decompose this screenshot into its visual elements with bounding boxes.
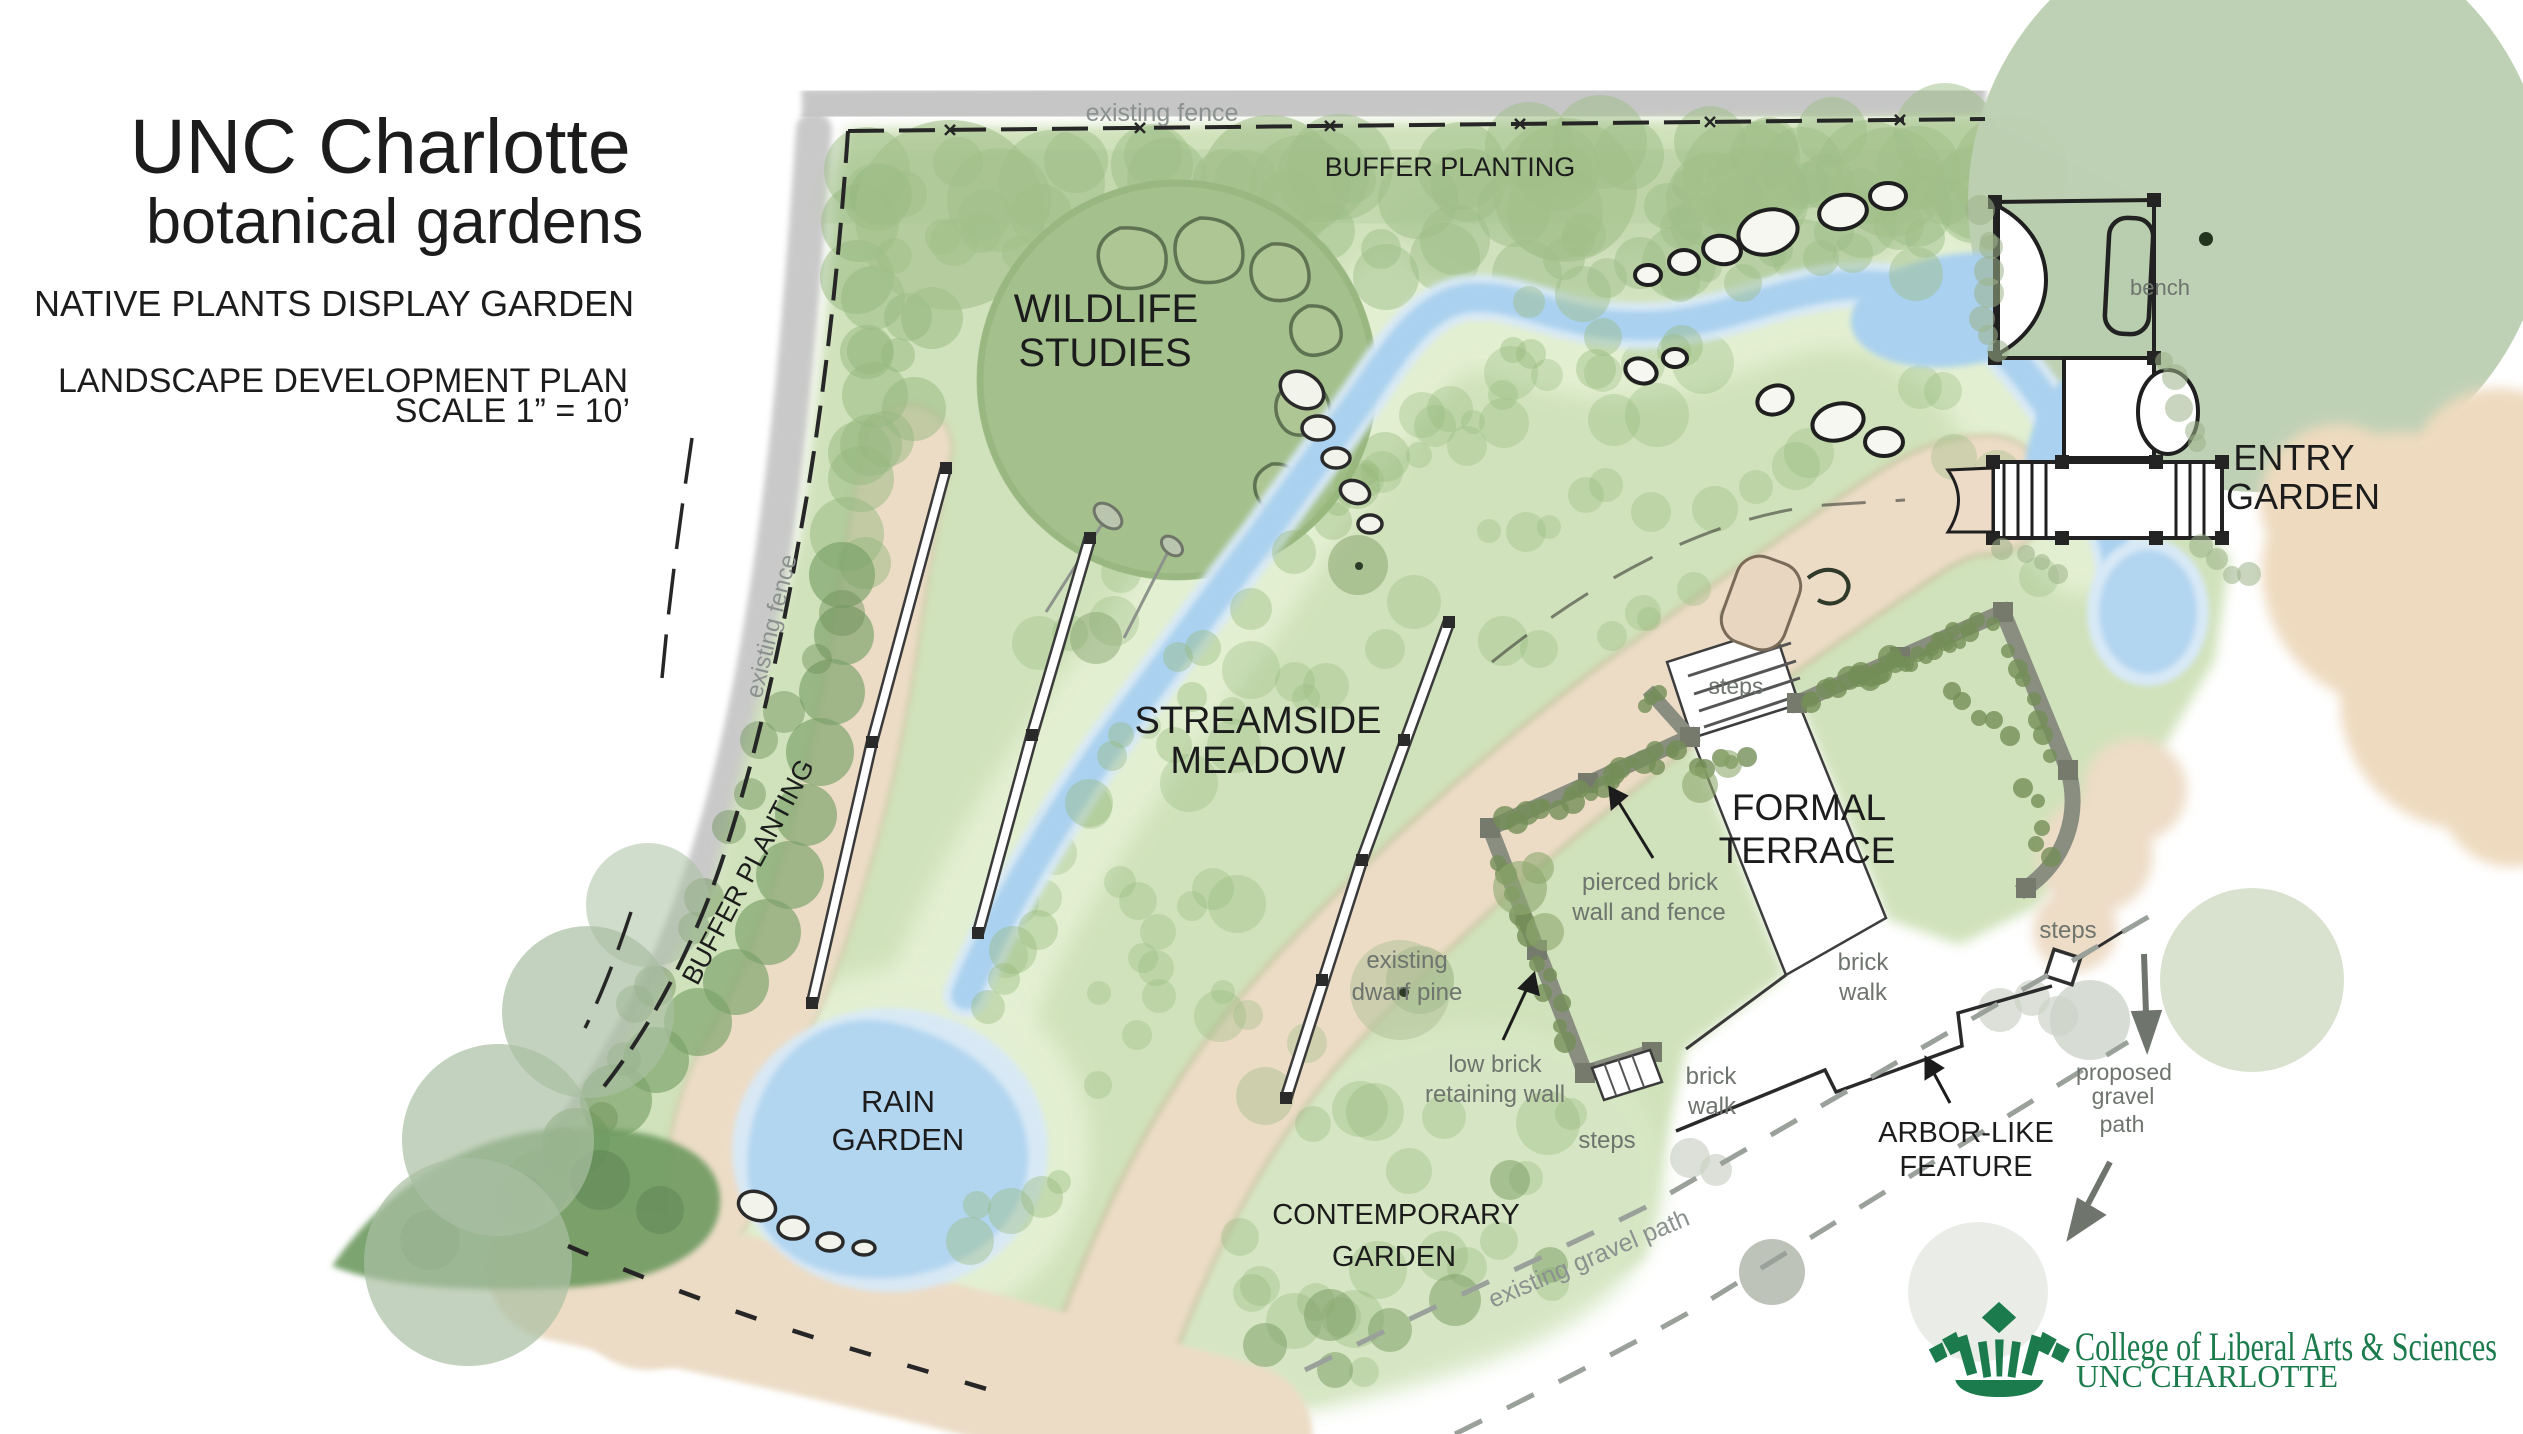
svg-text:ENTRY: ENTRY [2233, 437, 2354, 478]
svg-text:brick: brick [1838, 949, 1890, 976]
svg-text:walk: walk [1687, 1093, 1737, 1120]
svg-text:BUFFER PLANTING: BUFFER PLANTING [1325, 152, 1576, 182]
svg-text:proposed: proposed [2076, 1059, 2172, 1085]
svg-text:MEADOW: MEADOW [1170, 740, 1345, 782]
svg-text:FEATURE: FEATURE [1899, 1151, 2032, 1183]
svg-text:bench: bench [2130, 275, 2190, 300]
svg-text:existing fence: existing fence [1086, 99, 1239, 127]
svg-text:steps: steps [2039, 917, 2096, 944]
svg-text:STUDIES: STUDIES [1018, 331, 1191, 375]
svg-text:GARDEN: GARDEN [2226, 476, 2380, 517]
svg-text:ARBOR-LIKE: ARBOR-LIKE [1878, 1117, 2054, 1149]
svg-text:FORMAL: FORMAL [1732, 787, 1886, 828]
svg-text:low brick: low brick [1448, 1051, 1542, 1078]
svg-text:TERRACE: TERRACE [1719, 830, 1896, 871]
svg-text:retaining wall: retaining wall [1425, 1081, 1565, 1108]
svg-text:walk: walk [1838, 979, 1888, 1006]
svg-text:NATIVE PLANTS DISPLAY GARDEN: NATIVE PLANTS DISPLAY GARDEN [34, 283, 634, 324]
svg-text:steps: steps [1578, 1127, 1635, 1154]
svg-text:STREAMSIDE: STREAMSIDE [1134, 700, 1381, 742]
svg-text:GARDEN: GARDEN [832, 1122, 965, 1157]
svg-text:steps: steps [1709, 673, 1764, 699]
svg-text:CONTEMPORARY: CONTEMPORARY [1272, 1199, 1520, 1231]
svg-text:gravel: gravel [2092, 1083, 2155, 1109]
svg-text:UNC CHARLOTTE: UNC CHARLOTTE [2076, 1358, 2338, 1394]
svg-text:RAIN: RAIN [861, 1084, 935, 1119]
svg-text:path: path [2100, 1111, 2145, 1137]
svg-text:dwarf pine: dwarf pine [1352, 979, 1463, 1006]
svg-text:GARDEN: GARDEN [1332, 1241, 1456, 1273]
svg-text:UNC Charlotte: UNC Charlotte [130, 104, 631, 190]
svg-text:brick: brick [1686, 1063, 1738, 1090]
svg-text:botanical gardens: botanical gardens [146, 187, 643, 257]
svg-text:WILDLIFE: WILDLIFE [1014, 287, 1198, 331]
svg-text:wall and fence: wall and fence [1571, 899, 1725, 926]
svg-text:pierced brick: pierced brick [1582, 869, 1719, 896]
svg-text:SCALE 1” = 10’: SCALE 1” = 10’ [395, 392, 630, 430]
svg-text:existing: existing [1366, 947, 1447, 974]
